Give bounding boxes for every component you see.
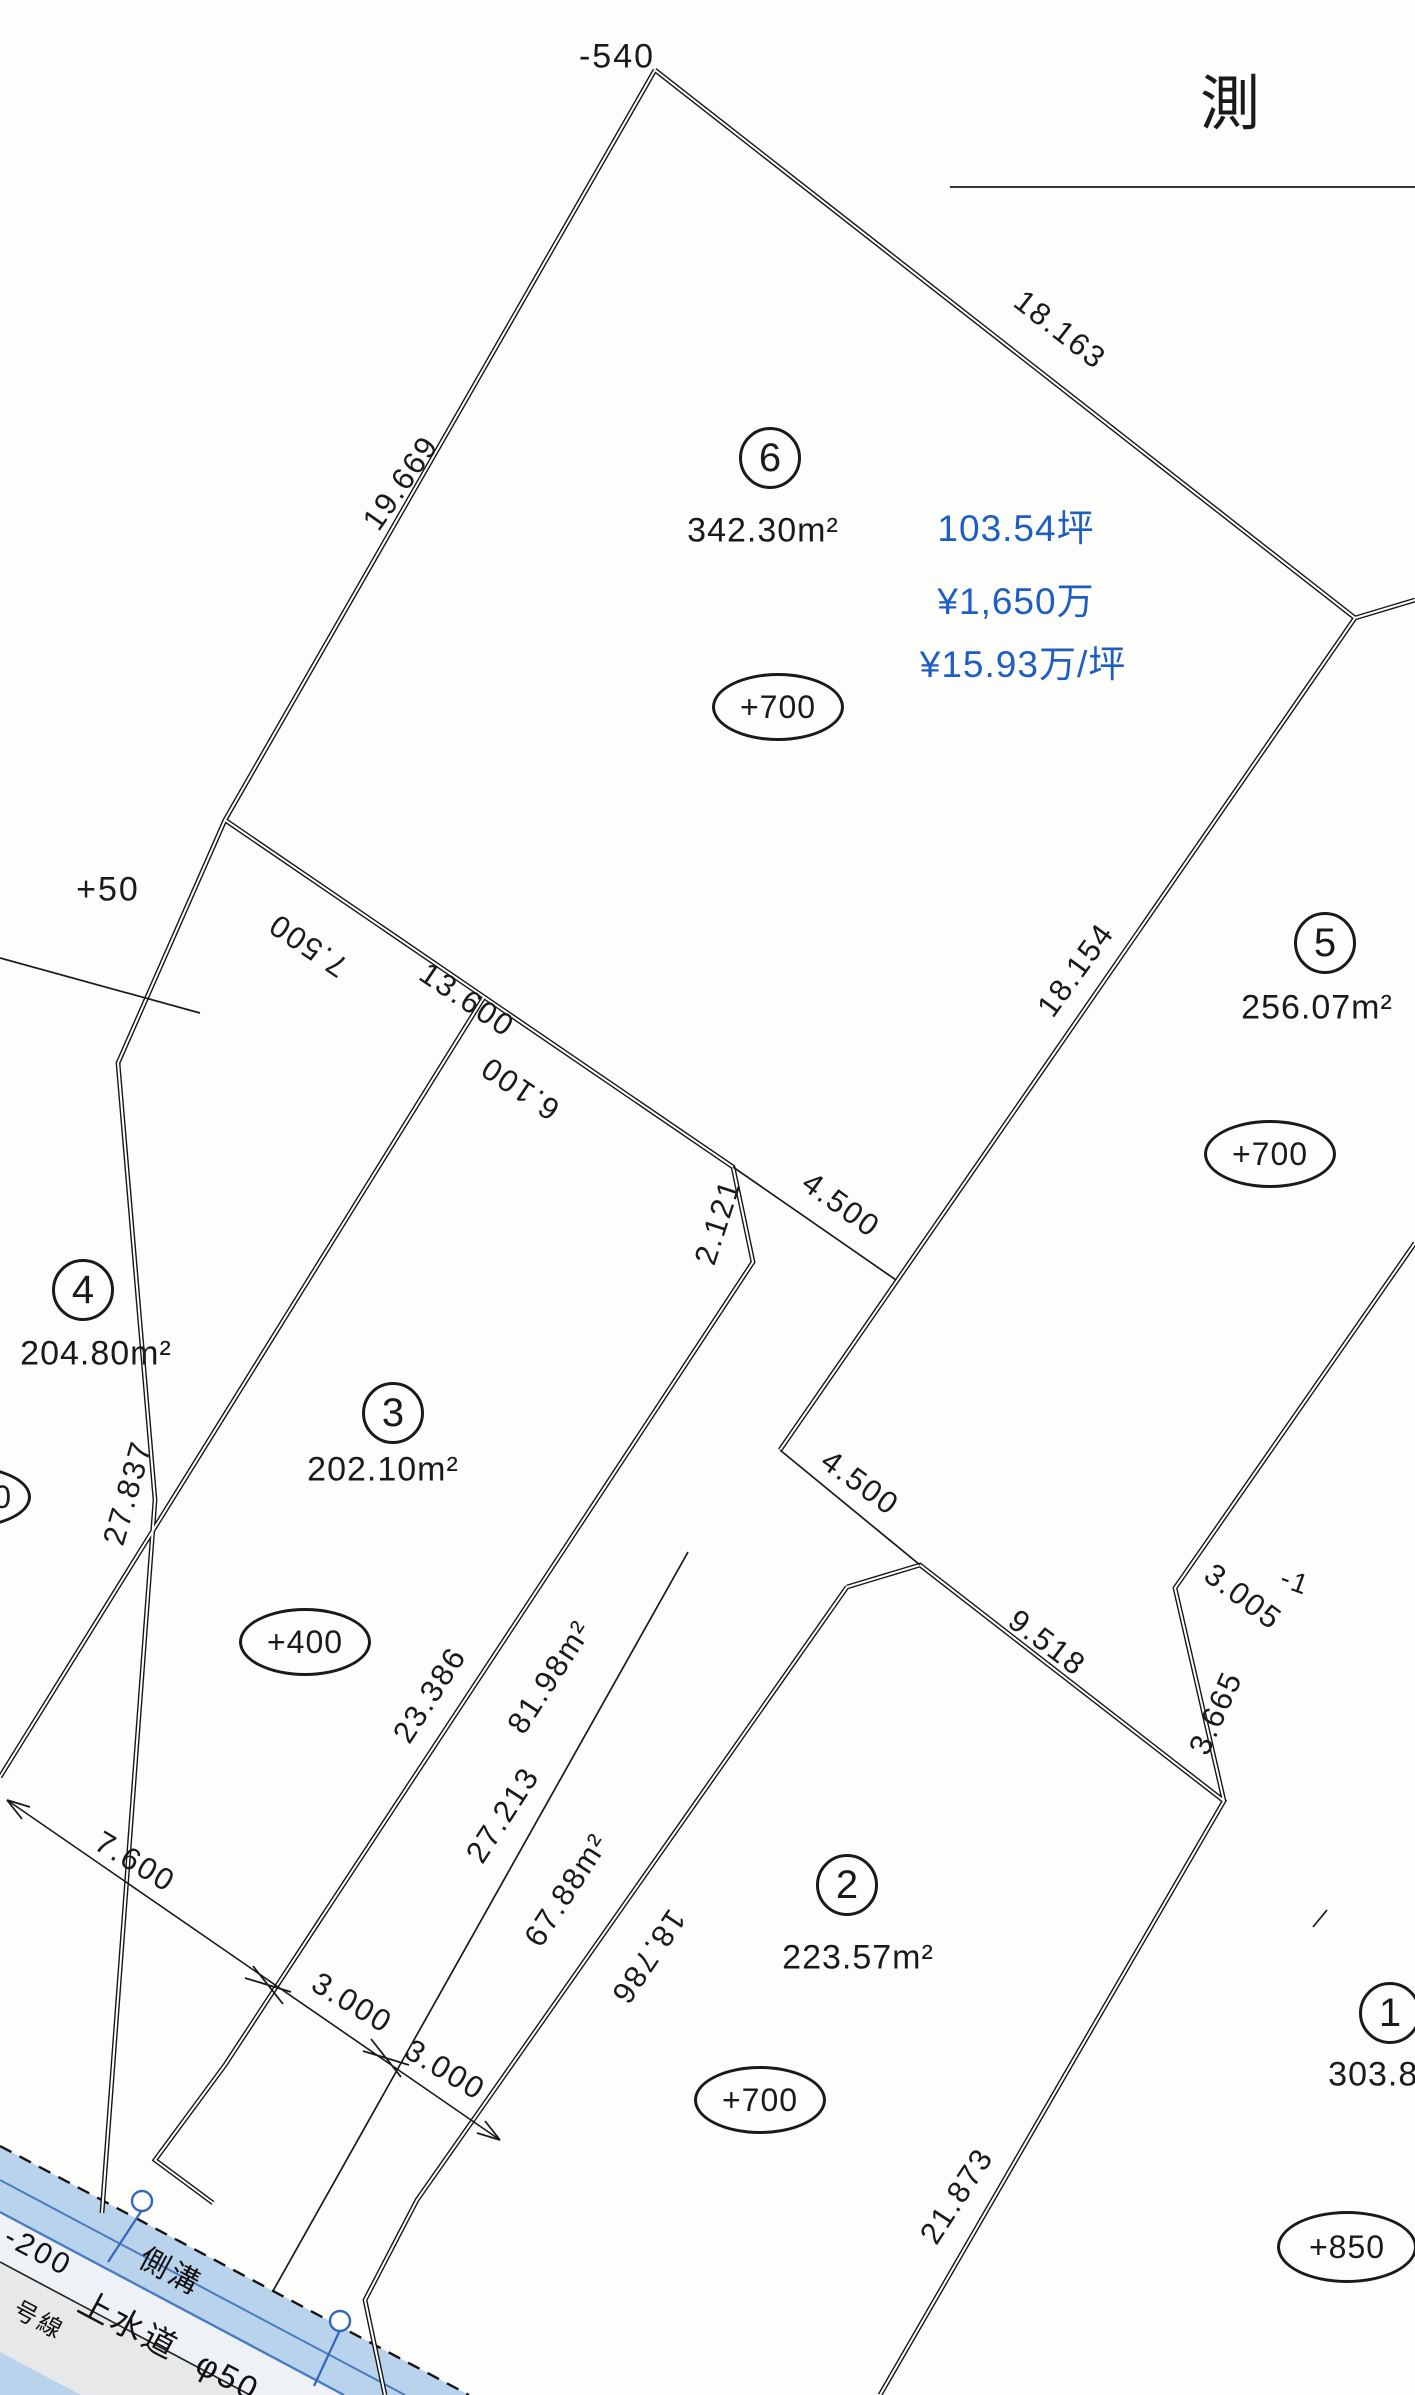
parcel-4-number: 4 xyxy=(52,1259,114,1321)
parcel-2-area: 223.57m² xyxy=(782,1939,934,1978)
parcel-6-number: 6 xyxy=(739,427,801,489)
parcel-5-elevation: +700 xyxy=(1204,1120,1336,1188)
parcel-6-elevation: +700 xyxy=(712,673,844,741)
parcel-2-elevation: +700 xyxy=(694,2066,826,2134)
road-band xyxy=(0,2146,469,2395)
parcel-3-area: 202.10m² xyxy=(307,1451,459,1490)
parcel-5-number: 5 xyxy=(1294,912,1356,974)
parcel-1-area: 303.80m² xyxy=(1328,2056,1415,2095)
water-valve-icon-2 xyxy=(330,2311,350,2331)
parcel-3-elevation: +400 xyxy=(239,1608,371,1676)
parcel-3-number: 3 xyxy=(362,1382,424,1444)
parcel-6-unit-price: ¥15.93万/坪 xyxy=(920,634,1126,688)
parcel-6-tsubo: 103.54坪 xyxy=(937,498,1094,552)
sheet-title: 測 xyxy=(1200,56,1260,143)
dimension-arrows xyxy=(7,1800,500,2140)
water-valve-icon xyxy=(132,2191,152,2211)
parcel-6-area: 342.30m² xyxy=(687,512,839,551)
parcel-4-area: 204.80m² xyxy=(20,1335,172,1374)
parcel-6-price: ¥1,650万 xyxy=(937,571,1094,625)
parcel-5-area: 256.07m² xyxy=(1241,989,1393,1028)
parcel-2-number: 2 xyxy=(816,1854,878,1916)
elevation-plus50: +50 xyxy=(76,871,140,910)
parcel-1-elevation: +850 xyxy=(1277,2211,1415,2283)
parcel-1-number: 1 xyxy=(1359,1982,1415,2044)
elevation-top: -540 xyxy=(579,38,655,77)
survey-map: 測 -540 18.163 19.669 +50 7.500 13.600 6.… xyxy=(0,0,1415,2395)
